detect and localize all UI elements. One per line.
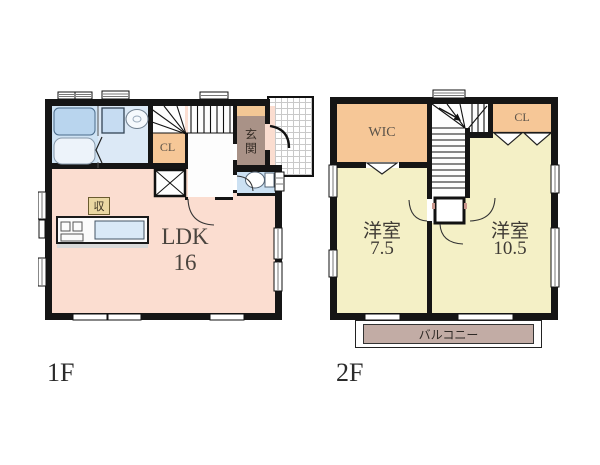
stair-winder-area — [150, 106, 185, 133]
closet-2f-label: CL — [493, 110, 551, 125]
storage-label: 収 — [88, 197, 110, 215]
floor-2f-caption: 2F — [336, 358, 363, 388]
room-toilet — [237, 172, 275, 193]
stair-flight-2f — [465, 104, 488, 132]
floor-1f-caption: 1F — [47, 358, 74, 388]
floor-plan-1f: CL 玄関 収 LDK 16 — [38, 88, 313, 338]
ldk-room-size: 16 — [145, 250, 225, 276]
ldk-room-name: LDK — [145, 224, 225, 250]
wic-label: WIC — [337, 125, 427, 141]
bedroom-right-size: 10.5 — [470, 238, 550, 260]
room-balcony: バルコニー — [363, 324, 534, 344]
room-washroom — [98, 106, 148, 163]
room-bathroom — [52, 106, 98, 163]
floor-plan-2f: バルコニー — [325, 88, 565, 363]
shoe-cabinet — [237, 106, 265, 116]
bedroom-left-size: 7.5 — [342, 238, 422, 260]
balcony-label: バルコニー — [419, 326, 479, 343]
entrance-label: 玄関 — [237, 120, 265, 164]
closet-1f-label: CL — [150, 140, 185, 155]
stairwell-2f — [432, 104, 465, 223]
stair-and-hall — [188, 106, 233, 197]
